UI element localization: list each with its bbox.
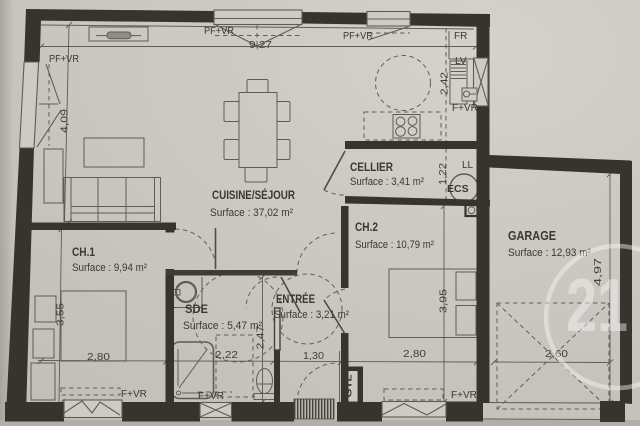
svg-text:F+VR: F+VR	[452, 103, 478, 114]
svg-text:Surface : 5,47 m²: Surface : 5,47 m²	[183, 320, 262, 332]
svg-text:ENTRÉE: ENTRÉE	[276, 293, 315, 306]
svg-text:21: 21	[566, 263, 628, 347]
svg-text:1,22: 1,22	[438, 163, 449, 185]
svg-text:CUISINE/SÉJOUR: CUISINE/SÉJOUR	[212, 189, 296, 202]
svg-text:F+VR: F+VR	[451, 390, 477, 401]
svg-text:PF+VR: PF+VR	[49, 54, 79, 65]
svg-text:1,30: 1,30	[303, 351, 324, 362]
svg-text:F+VR: F+VR	[121, 389, 147, 400]
svg-text:2,42: 2,42	[440, 71, 451, 95]
svg-text:Surface : 3,21 m²: Surface : 3,21 m²	[274, 309, 349, 321]
svg-text:PF+VR: PF+VR	[343, 31, 373, 42]
svg-text:Surface : 37,02 m²: Surface : 37,02 m²	[210, 207, 293, 219]
svg-text:3,95: 3,95	[439, 288, 450, 313]
svg-text:SDE: SDE	[185, 304, 208, 316]
svg-text:GARAGE: GARAGE	[508, 229, 556, 243]
svg-text:CH.1: CH.1	[72, 247, 96, 259]
svg-text:2,80: 2,80	[403, 349, 427, 360]
svg-text:2,22: 2,22	[215, 350, 239, 361]
svg-text:LL: LL	[462, 160, 474, 171]
svg-text:9,27: 9,27	[249, 40, 273, 51]
svg-text:GTL: GTL	[344, 374, 355, 397]
svg-text:2,80: 2,80	[87, 352, 111, 363]
svg-text:Surface : 9,94 m²: Surface : 9,94 m²	[72, 262, 147, 274]
svg-text:ECS: ECS	[447, 183, 469, 195]
svg-text:FR: FR	[454, 31, 467, 42]
svg-text:Surface : 10,79 m²: Surface : 10,79 m²	[355, 239, 434, 251]
svg-text:PF+VR: PF+VR	[204, 26, 234, 37]
svg-text:4,09: 4,09	[60, 108, 71, 133]
svg-text:CELLIER: CELLIER	[350, 162, 394, 174]
svg-text:F+VR: F+VR	[198, 391, 224, 402]
svg-text:Surface : 3,41 m²: Surface : 3,41 m²	[350, 176, 424, 188]
svg-text:CH.2: CH.2	[355, 222, 378, 234]
svg-text:LV: LV	[455, 56, 467, 67]
svg-text:2,47: 2,47	[256, 325, 267, 350]
svg-text:3,55: 3,55	[56, 302, 67, 326]
